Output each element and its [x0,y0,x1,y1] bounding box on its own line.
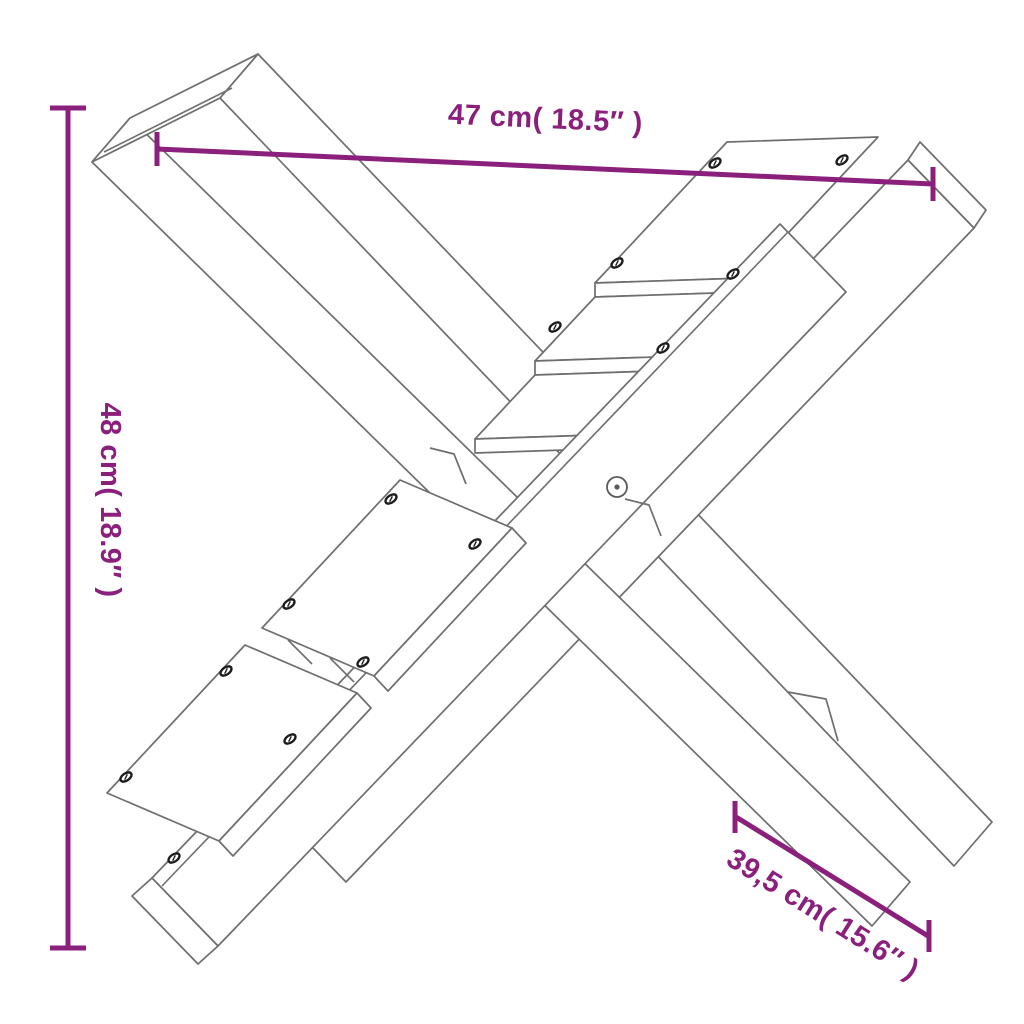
dimension-height: 48 cm( 18.9″ ) [50,108,126,948]
screw-icon [548,320,562,333]
diagram-canvas: 47 cm( 18.5″ ) 48 cm( 18.9″ ) 39,5 cm( 1… [0,0,1024,1024]
pivot-bolt-icon [607,477,627,497]
furniture-line-drawing [92,54,992,964]
product-dimension-diagram: 47 cm( 18.5″ ) 48 cm( 18.9″ ) 39,5 cm( 1… [0,0,1024,1024]
top-left-miter-inner-line [104,88,232,152]
dimension-height-label: 48 cm( 18.9″ ) [94,403,126,598]
dimension-width-label: 47 cm( 18.5″ ) [447,99,643,140]
